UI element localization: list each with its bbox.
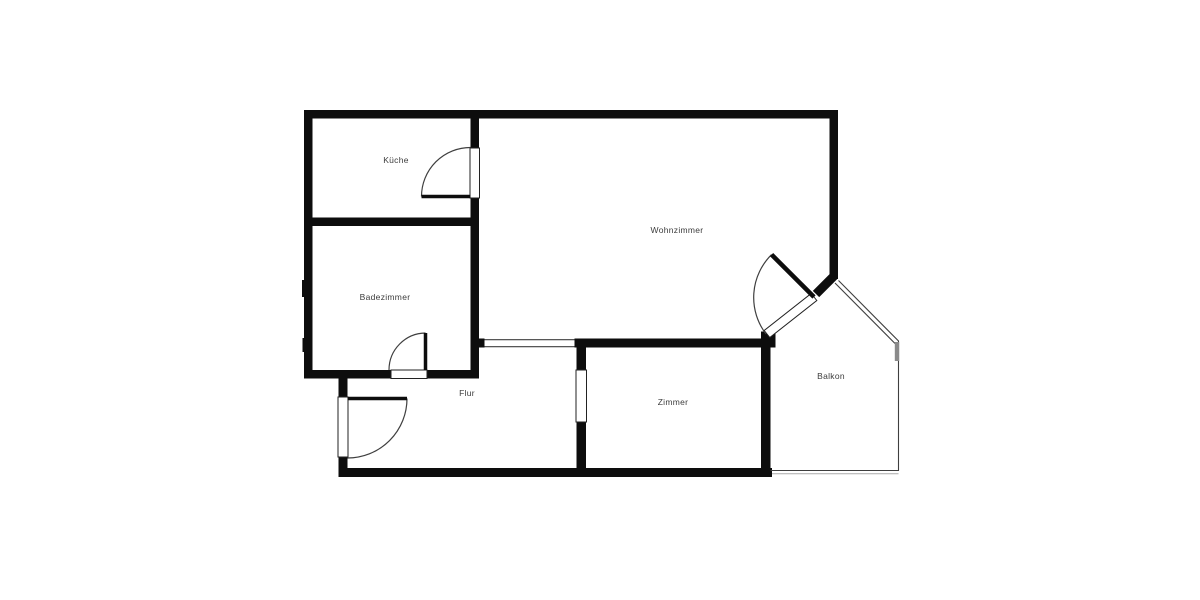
- room-label-balkon: Balkon: [817, 371, 845, 381]
- badezimmer-door-arc: [389, 333, 426, 370]
- kueche-door: [421, 148, 479, 199]
- zimmer-door: [576, 370, 587, 422]
- room-label-kueche: Küche: [383, 155, 409, 165]
- badezimmer-door: [389, 333, 427, 379]
- outer-bottom-wall: [339, 468, 773, 477]
- room-label-zimmer: Zimmer: [658, 397, 689, 407]
- badezimmer-door-threshold: [391, 370, 427, 379]
- entrance-door-threshold: [338, 397, 348, 457]
- kueche-door-arc: [421, 148, 470, 197]
- bad-bottom-wall-right: [427, 370, 479, 379]
- balkon-door-upper-jamb-wall: [816, 276, 834, 294]
- balkon-door: [754, 255, 817, 338]
- open-passage: [485, 340, 575, 347]
- passage-stub: [471, 339, 485, 348]
- entrance-door: [338, 397, 407, 458]
- kueche-right-wall-upper: [471, 110, 480, 148]
- zimmer-door-threshold: [576, 370, 587, 422]
- balkon-door-leaf: [772, 255, 814, 297]
- balkon-diagonal-inner-line: [835, 283, 895, 344]
- kueche-bad-divider-wall: [304, 218, 479, 227]
- flur-left-wall-upper: [339, 372, 348, 397]
- floor-plan-canvas: Küche Badezimmer Wohnzimmer Flur Zimmer …: [0, 0, 1200, 600]
- floor-plan-svg: Küche Badezimmer Wohnzimmer Flur Zimmer …: [0, 0, 1200, 600]
- balkon-door-threshold: [764, 294, 817, 338]
- flur-zimmer-wall-upper: [577, 339, 587, 371]
- balkon-door-arc: [754, 255, 772, 334]
- entrance-door-arc: [348, 399, 408, 459]
- left-wall-notch-upper: [302, 280, 305, 297]
- outer-left-wall: [304, 110, 313, 379]
- room-label-flur: Flur: [459, 388, 475, 398]
- kueche-door-threshold: [470, 148, 480, 198]
- outer-right-wall: [830, 110, 839, 279]
- open-passage-band: [485, 340, 575, 347]
- room-label-wohnzimmer: Wohnzimmer: [651, 225, 704, 235]
- room-label-badezimmer: Badezimmer: [360, 292, 411, 302]
- room-labels: Küche Badezimmer Wohnzimmer Flur Zimmer …: [360, 155, 845, 407]
- zimmer-right-wall: [761, 332, 771, 478]
- outer-top-wall: [304, 110, 838, 119]
- left-wall-notch-lower: [303, 338, 305, 352]
- wohnzimmer-bottom-wall: [575, 339, 776, 348]
- balkon-post-marker: [895, 342, 899, 361]
